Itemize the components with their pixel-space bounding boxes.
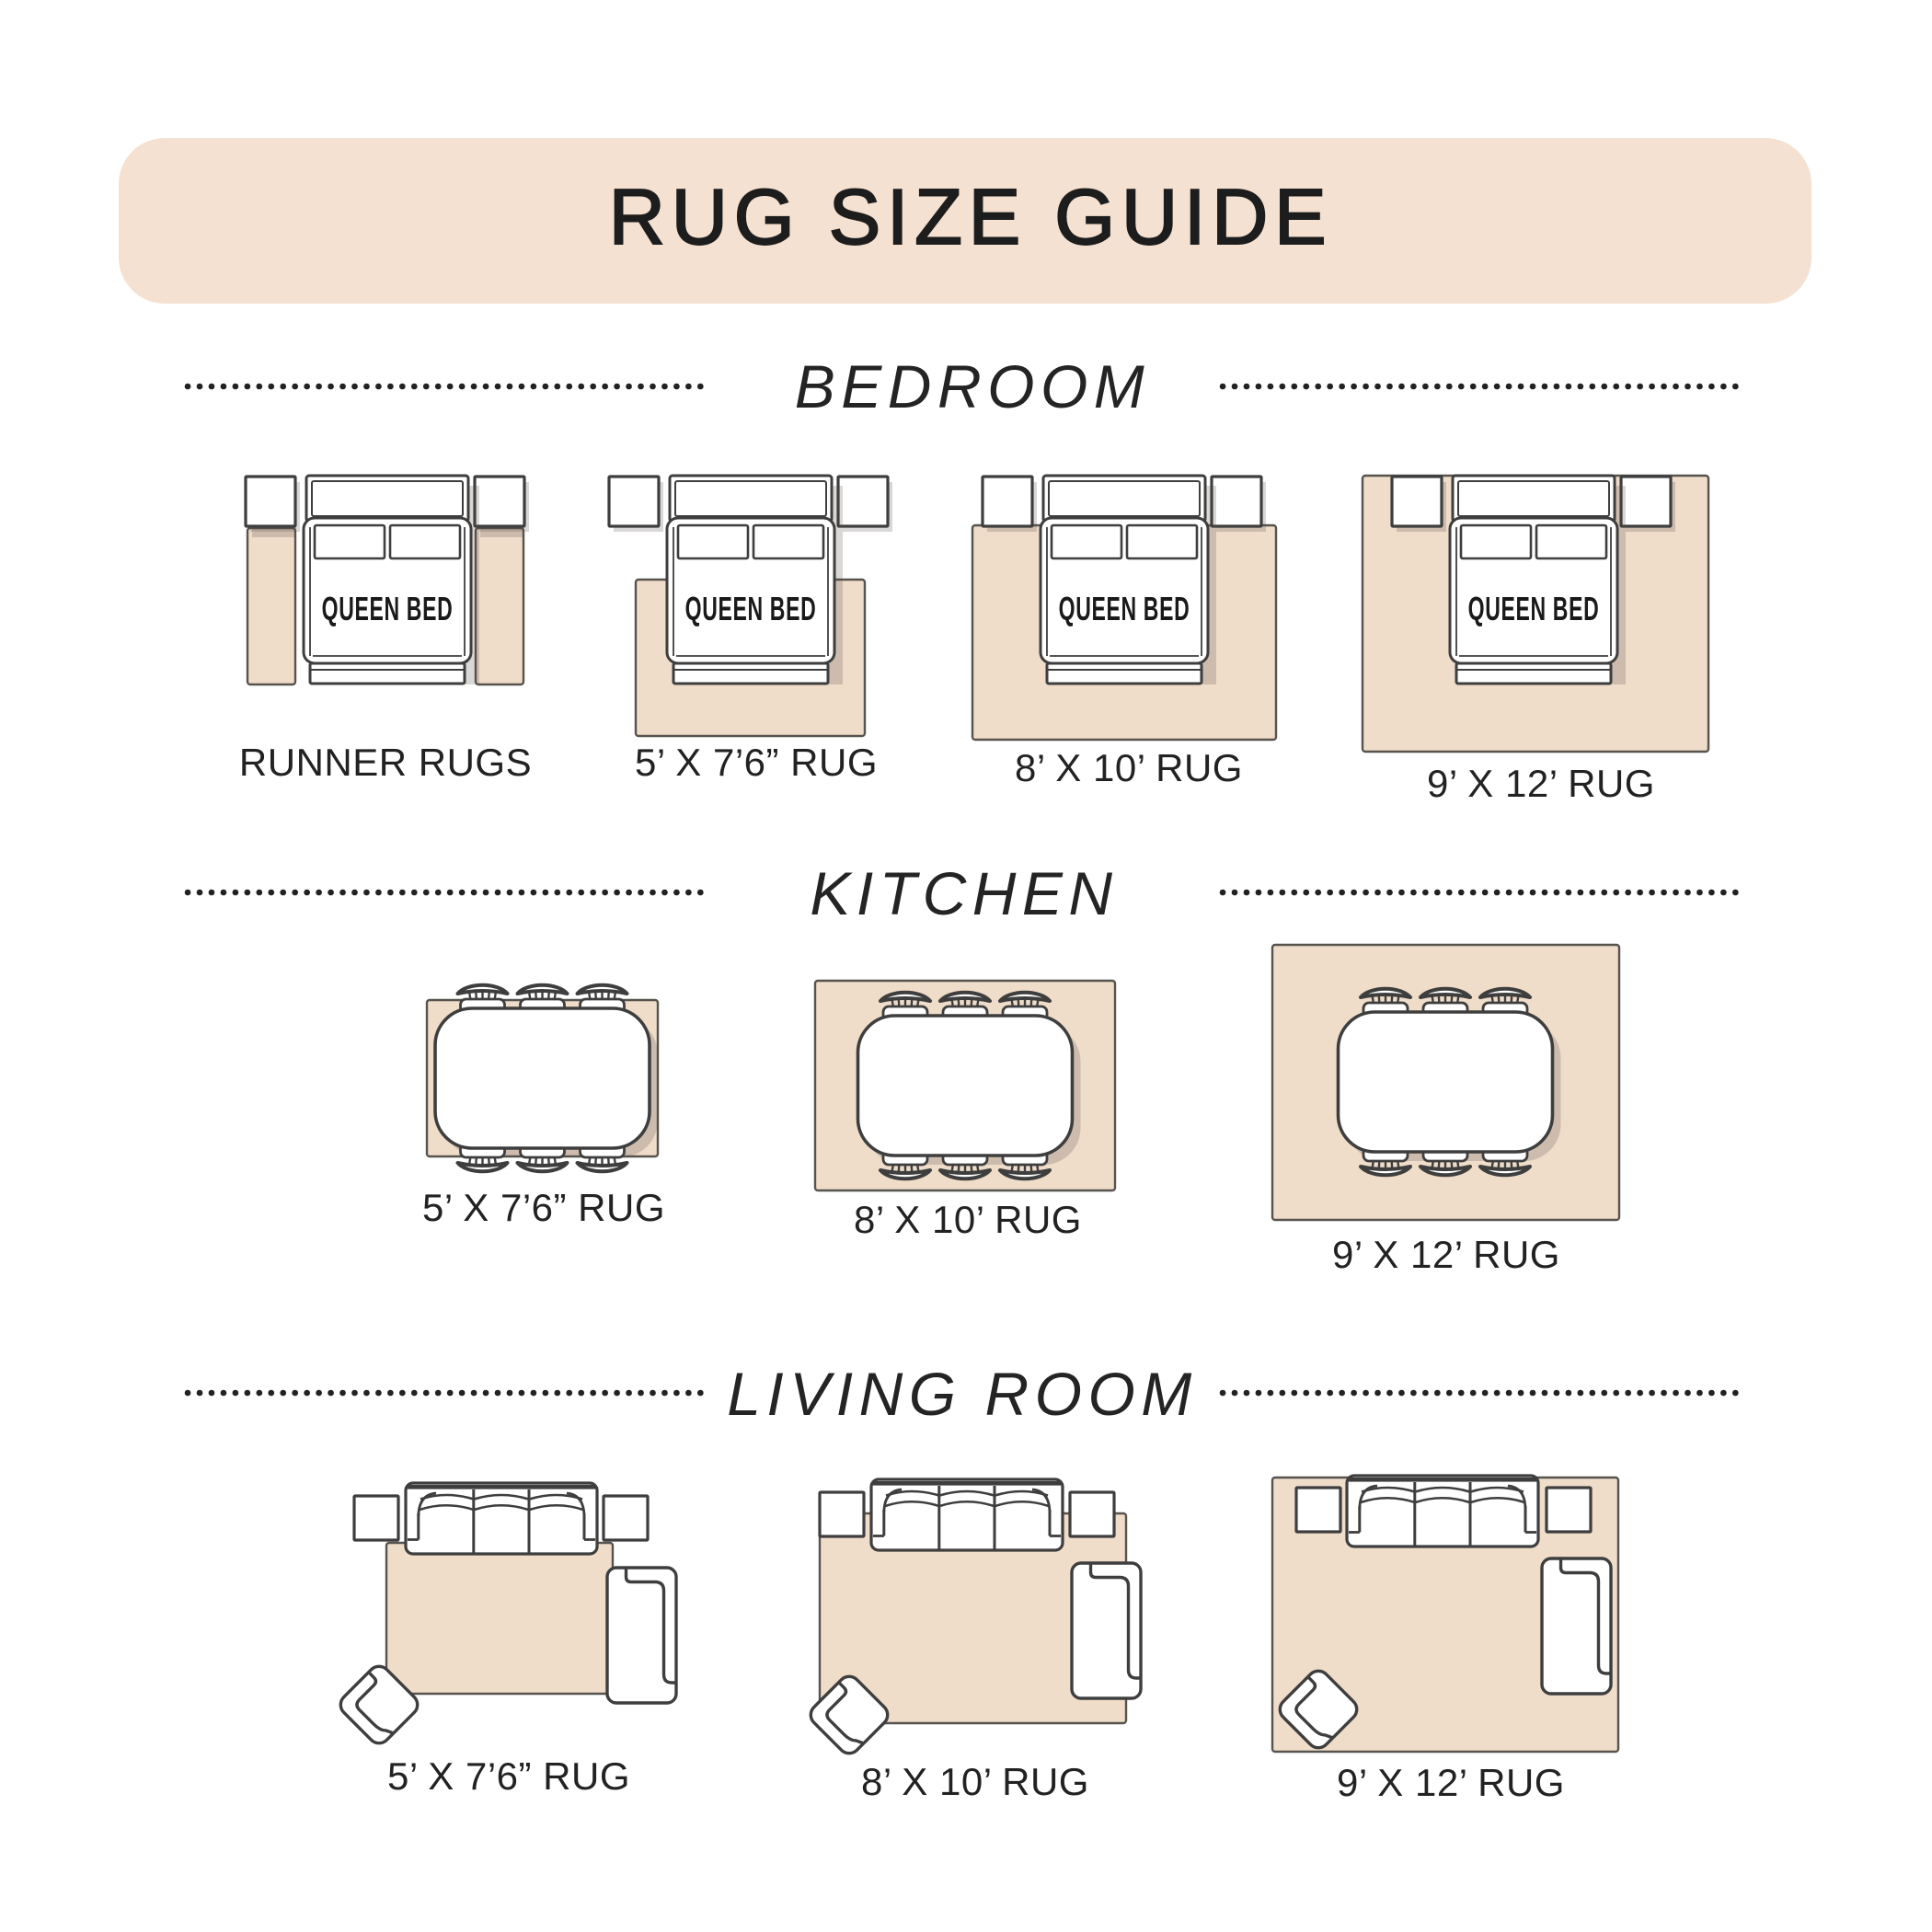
svg-text:RUNNER RUGS: RUNNER RUGS <box>239 741 532 784</box>
svg-text:KITCHEN: KITCHEN <box>810 859 1118 927</box>
svg-text:QUEEN BED: QUEEN BED <box>685 592 817 627</box>
svg-text:5’ X 7’6” RUG: 5’ X 7’6” RUG <box>422 1186 665 1229</box>
svg-text:9’ X 12’ RUG: 9’ X 12’ RUG <box>1332 1233 1560 1276</box>
svg-text:BEDROOM: BEDROOM <box>795 352 1151 420</box>
svg-text:QUEEN BED: QUEEN BED <box>1059 592 1190 627</box>
svg-text:9’ X 12’ RUG: 9’ X 12’ RUG <box>1427 762 1655 805</box>
svg-text:8’ X 10’ RUG: 8’ X 10’ RUG <box>861 1760 1089 1803</box>
svg-text:QUEEN BED: QUEEN BED <box>1468 592 1600 627</box>
svg-text:QUEEN BED: QUEEN BED <box>322 592 454 627</box>
svg-text:9’ X 12’ RUG: 9’ X 12’ RUG <box>1337 1761 1565 1804</box>
svg-text:LIVING ROOM: LIVING ROOM <box>727 1360 1198 1428</box>
svg-text:8’ X 10’ RUG: 8’ X 10’ RUG <box>854 1198 1082 1241</box>
svg-text:RUG SIZE GUIDE: RUG SIZE GUIDE <box>609 174 1333 261</box>
svg-text:5’ X 7’6” RUG: 5’ X 7’6” RUG <box>635 741 878 784</box>
svg-text:5’ X 7’6” RUG: 5’ X 7’6” RUG <box>387 1754 630 1798</box>
svg-text:8’ X 10’ RUG: 8’ X 10’ RUG <box>1015 746 1243 789</box>
